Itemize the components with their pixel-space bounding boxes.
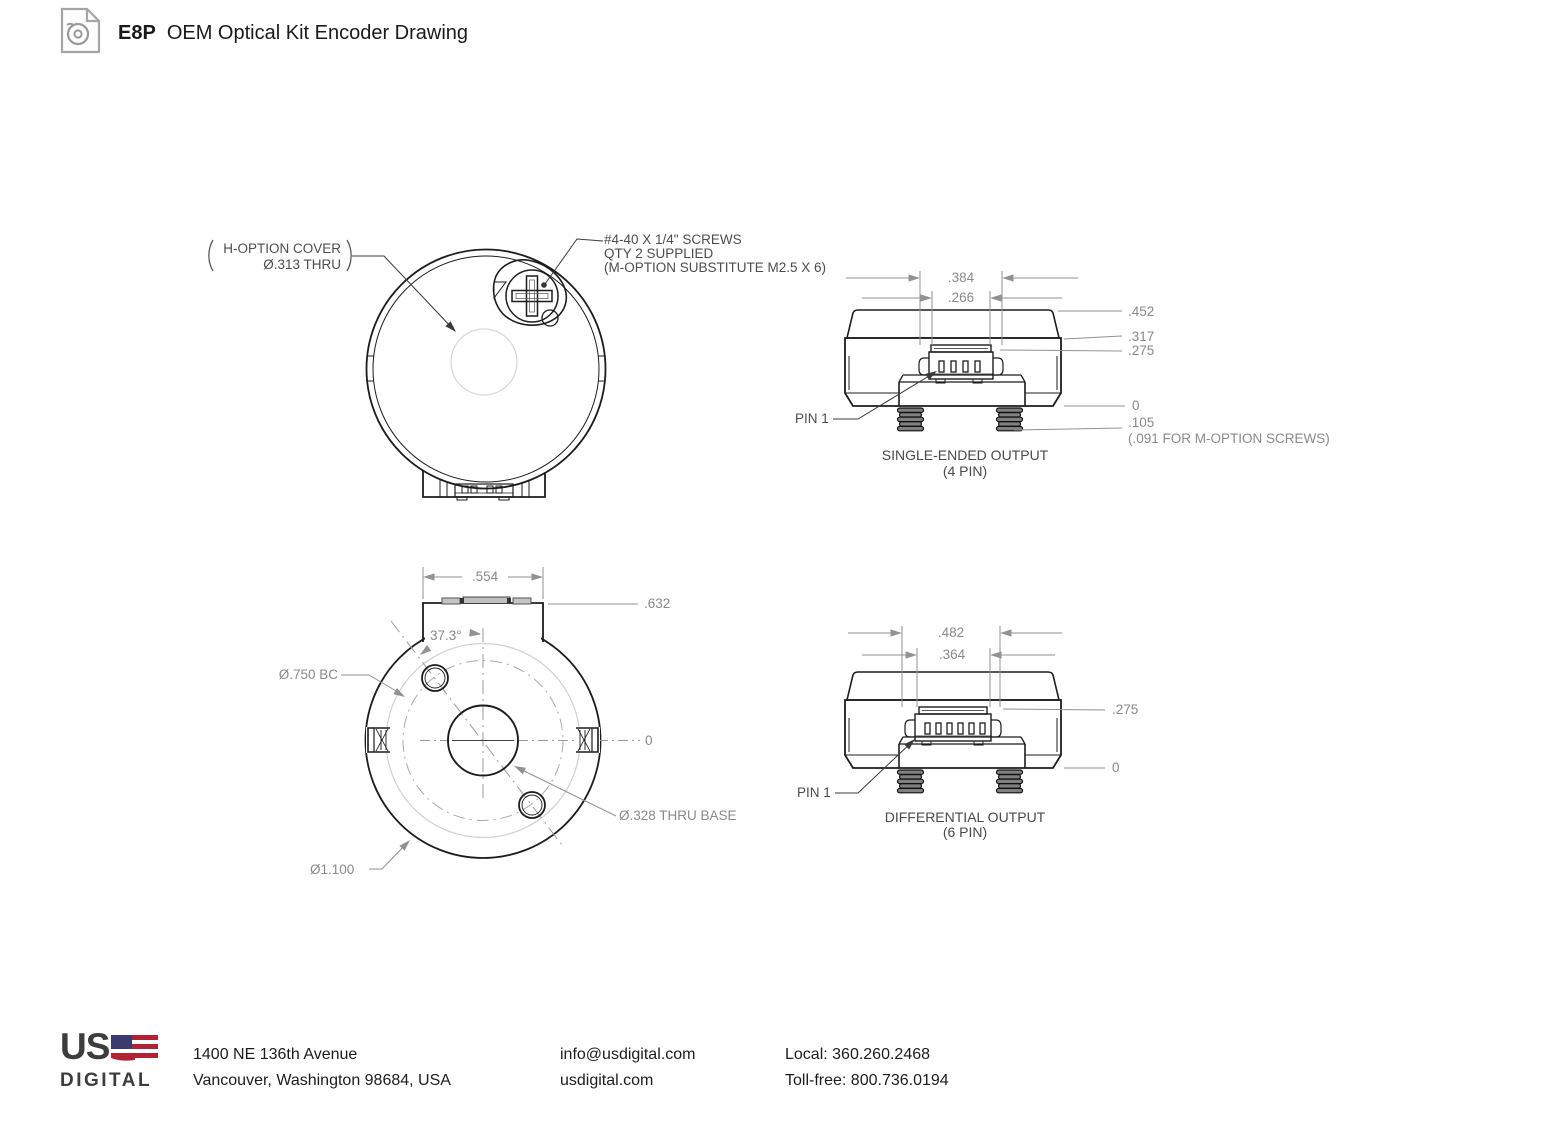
logo-us-text: US	[60, 1032, 109, 1062]
screw-note-line3: (M-OPTION SUBSTITUTE M2.5 X 6)	[604, 260, 826, 275]
dim-0-diff: 0	[1112, 760, 1120, 775]
dim-364: .364	[939, 647, 966, 662]
differential-view: .482 .364 .275 0 PIN 1 DIFFERENTIAL OUTP…	[797, 625, 1138, 840]
dim-angle: 37.3°	[430, 628, 462, 643]
se-caption-line1: SINGLE-ENDED OUTPUT	[882, 447, 1049, 463]
se-body	[845, 310, 1061, 406]
se-mounting-studs	[898, 408, 1023, 431]
single-ended-view: .384 .266 .452 .317 .275 0 .105 (.091 FO…	[795, 270, 1330, 479]
dim-384: .384	[948, 270, 975, 285]
se-connector	[919, 345, 1003, 383]
side-tab-left	[366, 727, 391, 753]
se-pin1-label: PIN 1	[795, 411, 829, 426]
dim-center-hole: Ø.328 THRU BASE	[619, 808, 737, 823]
diff-connector	[905, 707, 1001, 745]
encoder-drawing: H-OPTION COVER Ø.313 THRU #4-40 X 1/4" S…	[0, 0, 1564, 1010]
dim-266: .266	[948, 290, 974, 305]
phone-tollfree: Toll-free: 800.736.0194	[785, 1068, 949, 1094]
footer: US DIGITAL 1400 NE 136th Avenue Va	[0, 1028, 1564, 1118]
us-digital-logo: US DIGITAL	[60, 1032, 180, 1092]
dim-275: .275	[1128, 343, 1154, 358]
contact-email: info@usdigital.com	[560, 1042, 695, 1068]
dim-317: .317	[1128, 329, 1154, 344]
dim-0: 0	[1132, 398, 1140, 413]
screw-note-line1: #4-40 X 1/4" SCREWS	[604, 232, 742, 247]
address-line1: 1400 NE 136th Avenue	[193, 1042, 451, 1068]
front-view: H-OPTION COVER Ø.313 THRU #4-40 X 1/4" S…	[209, 232, 826, 500]
screw-note-leader	[545, 239, 603, 284]
dim-0-bottom: 0	[645, 733, 653, 748]
dim-275-diff: .275	[1112, 702, 1138, 717]
dim-482: .482	[938, 625, 964, 640]
screw-note-line2: QTY 2 SUPPLIED	[604, 246, 714, 261]
bottom-top-connector	[442, 597, 531, 604]
diff-caption-line1: DIFFERENTIAL OUTPUT	[885, 809, 1046, 825]
paren-left	[209, 240, 213, 271]
screw-head	[506, 270, 558, 322]
drawing-page: E8POEM Optical Kit Encoder Drawing	[0, 0, 1564, 1143]
phone-local: Local: 360.260.2468	[785, 1042, 949, 1068]
mounting-hole-lower	[519, 792, 545, 818]
bottom-view: .554 .632 37.3° Ø.750 BC 0 Ø.328 THRU BA…	[279, 567, 737, 877]
us-flag-icon	[111, 1035, 159, 1067]
logo-digital-text: DIGITAL	[60, 1070, 180, 1092]
footer-contact: info@usdigital.com usdigital.com	[560, 1042, 695, 1094]
se-caption-line2: (4 PIN)	[943, 463, 987, 479]
contact-website: usdigital.com	[560, 1068, 695, 1094]
dim-452: .452	[1128, 304, 1154, 319]
dim-632: .632	[644, 596, 670, 611]
diff-caption-line2: (6 PIN)	[943, 824, 987, 840]
side-tab-right	[575, 727, 600, 753]
dim-105-note: (.091 FOR M-OPTION SCREWS)	[1128, 431, 1330, 446]
address-line2: Vancouver, Washington 98684, USA	[193, 1068, 451, 1094]
footer-address: 1400 NE 136th Avenue Vancouver, Washingt…	[193, 1042, 451, 1094]
paren-right	[347, 240, 351, 271]
dim-outer-dia: Ø1.100	[310, 862, 354, 877]
cover-label-line2: Ø.313 THRU	[263, 257, 341, 272]
diff-pin1-label: PIN 1	[797, 785, 831, 800]
dim-105: .105	[1128, 415, 1154, 430]
footer-phones: Local: 360.260.2468 Toll-free: 800.736.0…	[785, 1042, 949, 1094]
hub-outline	[451, 329, 517, 395]
diff-mounting-studs	[898, 770, 1023, 793]
cover-label-line1: H-OPTION COVER	[223, 241, 341, 256]
diff-body	[845, 672, 1061, 768]
dim-554: .554	[472, 569, 499, 584]
dim-bolt-circle: Ø.750 BC	[279, 667, 339, 682]
